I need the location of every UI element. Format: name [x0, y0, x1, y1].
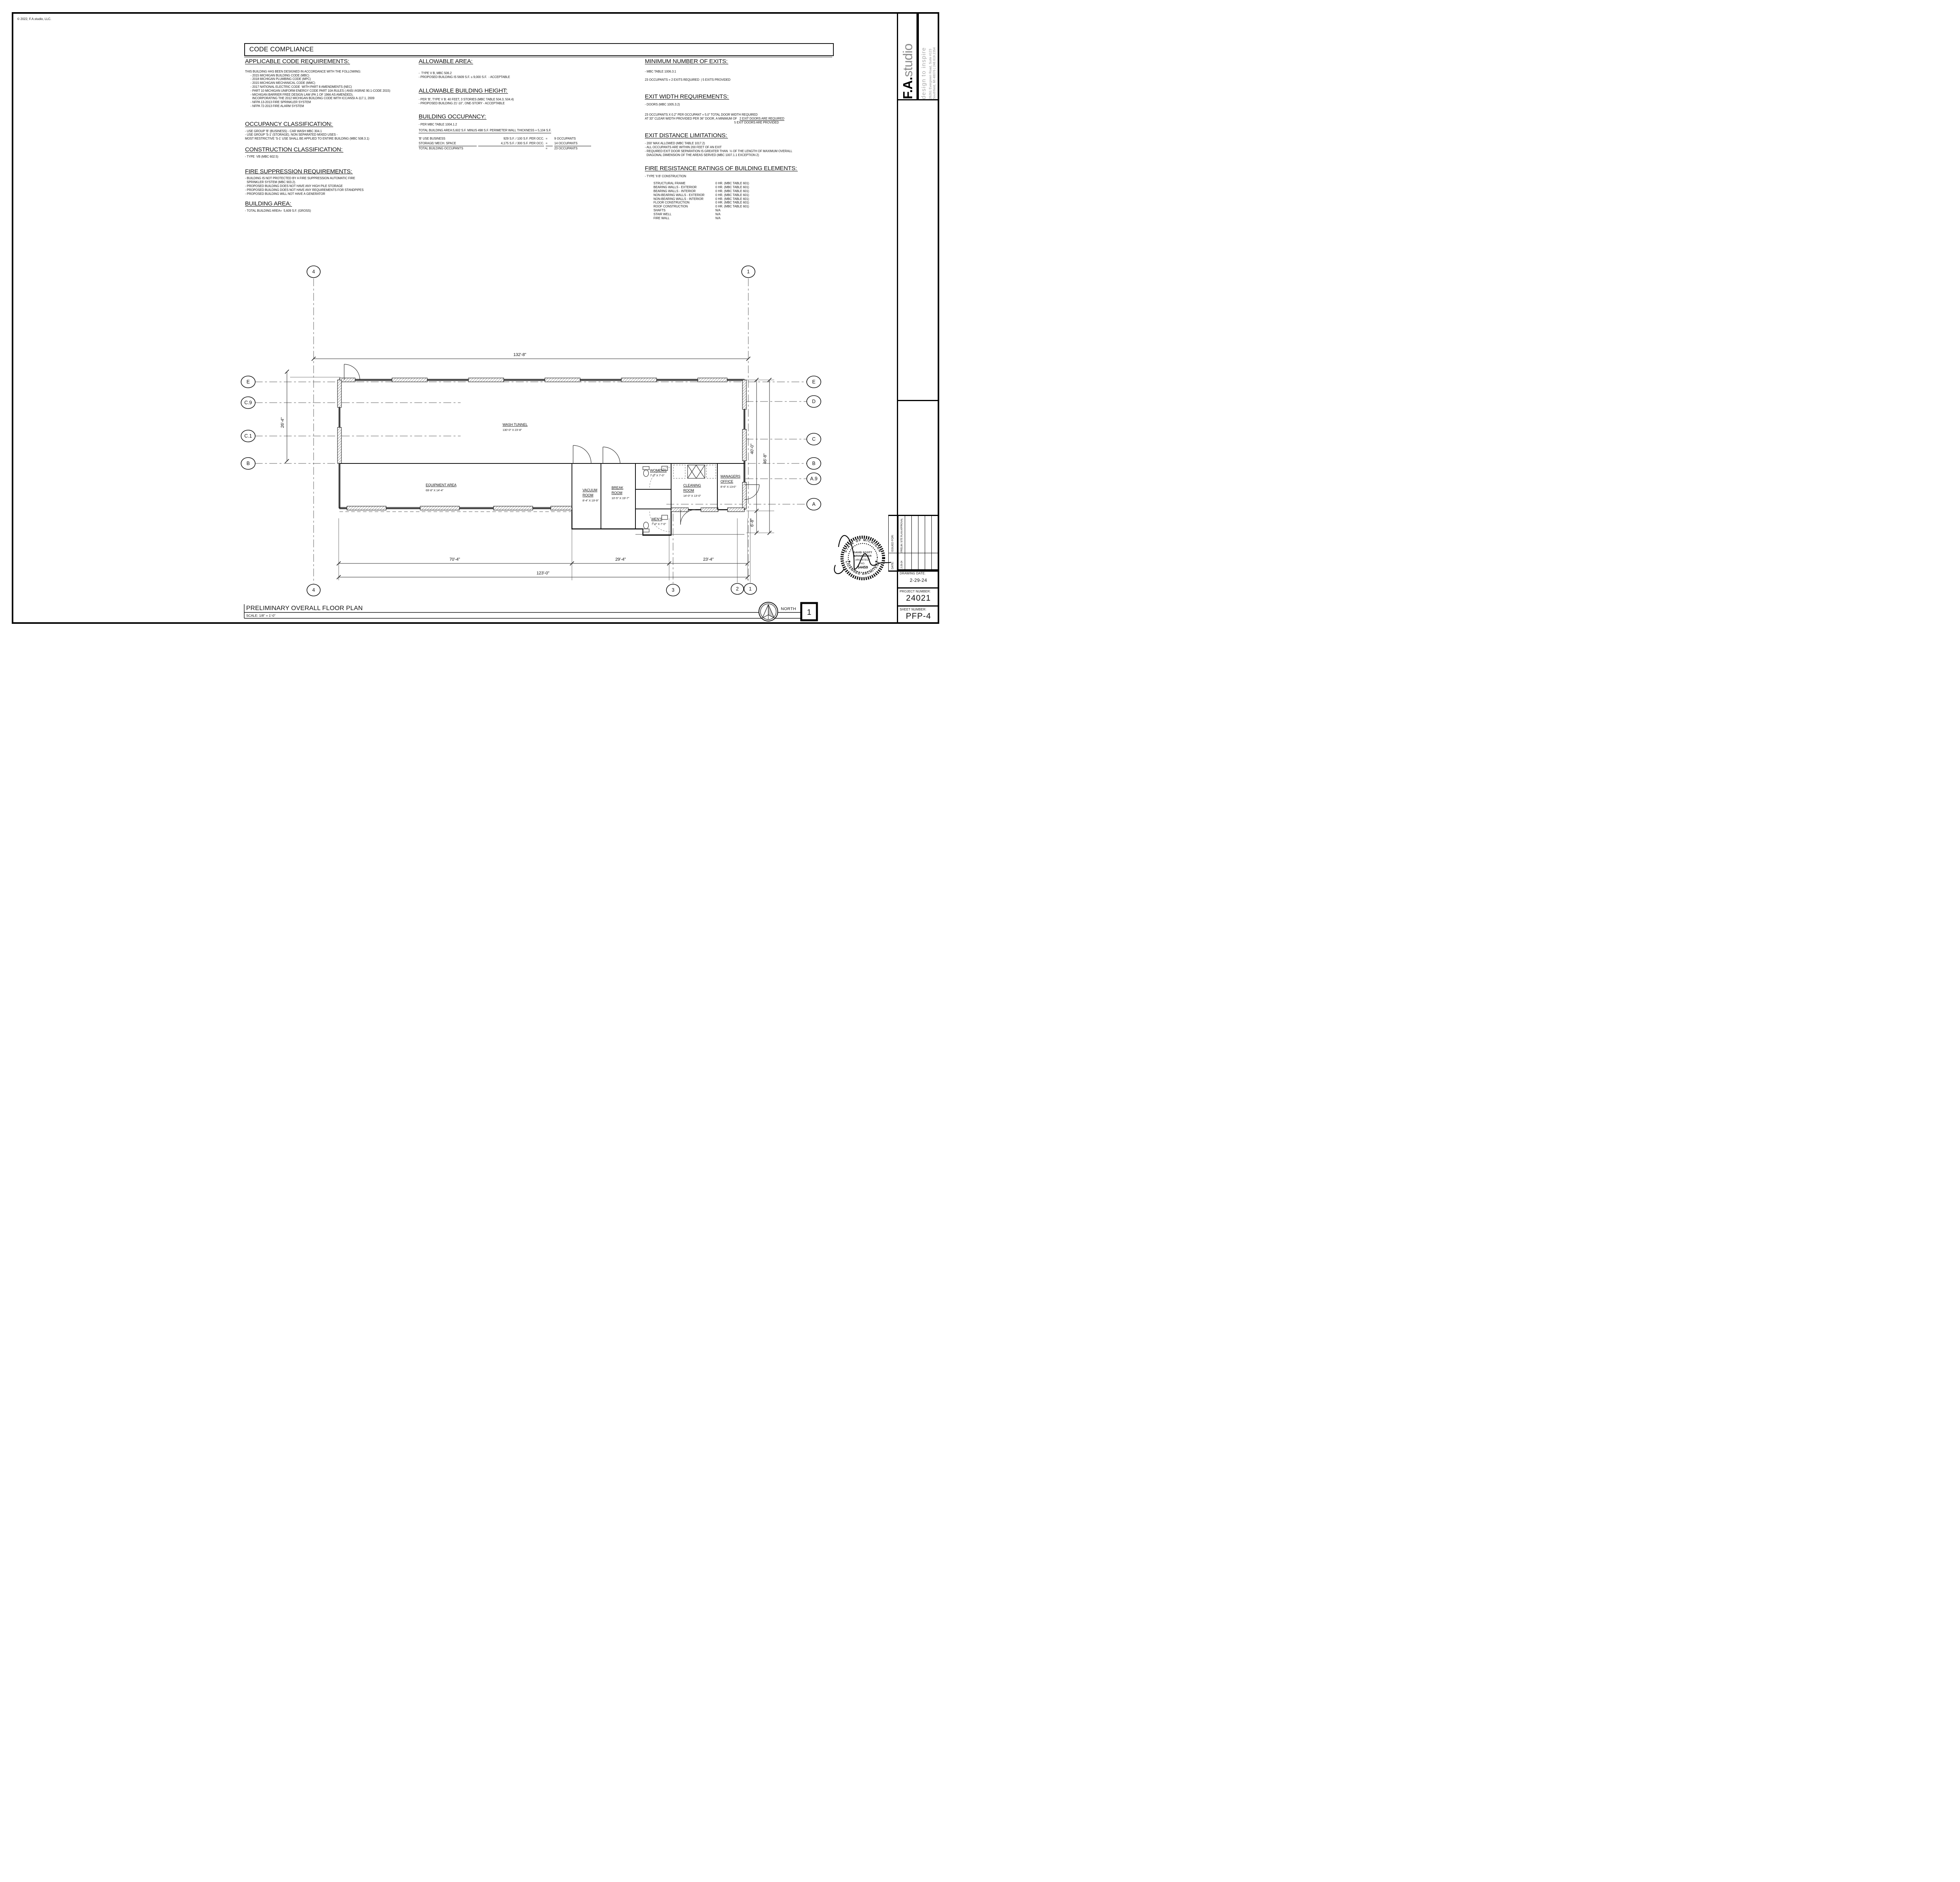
svg-text:1: 1	[749, 586, 752, 592]
dim-canopy: 6'-8"	[750, 518, 755, 527]
svg-text:A: A	[812, 501, 816, 507]
dim-right-b: 46'-8"	[763, 453, 768, 464]
firm-tagline: design to inspire	[920, 12, 927, 99]
svg-text:130'-0" X 23'-8": 130'-0" X 23'-8"	[503, 428, 522, 432]
detail-number: 1	[807, 608, 811, 617]
plan-scale: SCALE: 1/8" = 1'-0"	[246, 614, 276, 618]
firm-address: 26261 Evergreen Road, Suite #123 Southfi…	[929, 12, 936, 99]
project-number-value: 24021	[898, 594, 939, 603]
room-break: BREAK	[612, 486, 623, 490]
dim-seg1: 70'-4"	[450, 557, 460, 562]
north-arrow-icon	[759, 602, 778, 621]
date-label: DATE:	[891, 553, 894, 569]
svg-text:4: 4	[312, 269, 315, 274]
drawing-sheet: © 2022, F.A.studio, LLC. CODE COMPLIANCE…	[0, 0, 941, 627]
dim-seg2: 29'-4"	[615, 557, 626, 562]
svg-text:69'-8" X 14'-4": 69'-8" X 14'-4"	[426, 489, 443, 492]
svg-text:ROOM: ROOM	[612, 491, 622, 495]
svg-text:1: 1	[747, 269, 750, 274]
svg-text:3: 3	[672, 587, 675, 593]
svg-text:OFFICE: OFFICE	[720, 480, 733, 483]
dimension-labels: 132'-8" 70'-4" 29'-4" 23'-4" 123'-0" 26'…	[280, 352, 768, 576]
svg-text:ROOM: ROOM	[683, 489, 694, 492]
revision-date: 2-29-24	[900, 553, 903, 569]
project-name-cell: PROJECT NAME: JAX KAR WASH TROY, MI	[898, 400, 939, 516]
svg-text:10'-5" X 19'-7": 10'-5" X 19'-7"	[612, 496, 629, 500]
svg-text:B: B	[812, 461, 815, 466]
svg-text:E: E	[812, 379, 815, 385]
logo-bar	[916, 14, 919, 99]
room-wash-tunnel: WASH TUNNEL	[503, 423, 528, 427]
firm-logo-cell: F.A.studio design to inspire 26261 Everg…	[898, 12, 939, 100]
dim-top: 132'-8"	[514, 352, 526, 357]
svg-text:★: ★	[875, 560, 878, 563]
dimension-lines	[285, 357, 774, 583]
dim-seg3: 23'-4"	[703, 557, 714, 562]
sheet-number-value: PFP-4	[898, 612, 939, 621]
room-labels: WASH TUNNEL 130'-0" X 23'-8" EQUIPMENT A…	[426, 423, 740, 526]
svg-text:8'-4" X 19'-9": 8'-4" X 19'-9"	[583, 499, 599, 502]
svg-text:C.9: C.9	[244, 400, 252, 405]
plan-title-bar: PRELIMINARY OVERALL FLOOR PLAN SCALE: 1/…	[244, 602, 817, 621]
svg-text:ARCHITECT: ARCHITECT	[855, 559, 870, 561]
dim-right-a: 40'-0"	[750, 443, 755, 454]
plan-title: PRELIMINARY OVERALL FLOOR PLAN	[246, 605, 363, 612]
dim-overall: 123'-0"	[537, 571, 550, 576]
svg-text:2: 2	[736, 586, 739, 592]
svg-text:14'-0" X 13'-0": 14'-0" X 13'-0"	[683, 494, 701, 498]
project-number-label: PROJECT NUMBER:	[900, 590, 931, 593]
dim-left: 26'-4"	[280, 417, 285, 428]
architect-seal: STATE OF MICHIGAN LICENSED ARCHITECT DAV…	[834, 536, 891, 579]
svg-text:★: ★	[848, 560, 851, 563]
revisions-table: ISSUED FOR: DATE: PRELIM. SITE PLAN APPR…	[888, 515, 939, 572]
svg-text:B: B	[247, 461, 250, 466]
svg-text:ROOM: ROOM	[583, 493, 593, 497]
svg-text:C: C	[812, 436, 815, 442]
room-managers: MANAGERS	[720, 474, 740, 478]
svg-text:C.1: C.1	[244, 433, 252, 439]
walls	[338, 378, 746, 535]
drawing-date-label: DRAWING DATE:	[900, 572, 926, 575]
project-number-cell: PROJECT NUMBER: 24021	[898, 587, 939, 607]
svg-text:54459: 54459	[858, 565, 868, 570]
room-womens: WOMEN'S	[650, 469, 667, 472]
room-mens: MEN'S	[652, 517, 662, 521]
svg-text:A.9: A.9	[810, 476, 818, 481]
svg-text:NO.: NO.	[860, 562, 865, 565]
svg-text:8'-6" X 13-0": 8'-6" X 13-0"	[720, 485, 736, 489]
title-block: F.A.studio design to inspire 26261 Everg…	[897, 12, 939, 622]
grid-bubbles: 4 1 4 3 2 1 E C.9 C.1 B E D C B A.9 A	[241, 266, 821, 596]
firm-logo: F.A.studio	[900, 12, 915, 99]
revision-issued-for: PRELIM. SITE PLAN APPROVAL	[900, 516, 903, 552]
room-equipment-area: EQUIPMENT AREA	[426, 483, 457, 487]
sheet-number-label: SHEET NUMBER:	[900, 608, 926, 611]
floor-plan-svg: 132'-8" 70'-4" 29'-4" 23'-4" 123'-0" 26'…	[0, 0, 941, 627]
issued-for-label: ISSUED FOR:	[891, 517, 894, 552]
drawing-date-value: 2-29-24	[898, 578, 939, 583]
svg-text:E: E	[247, 379, 250, 385]
svg-text:D: D	[812, 399, 815, 404]
svg-text:7'-0" X 7'-0": 7'-0" X 7'-0"	[650, 474, 664, 477]
svg-text:DAVID SCOTT: DAVID SCOTT	[853, 551, 872, 554]
sheet-number-cell: SHEET NUMBER: PFP-4	[898, 605, 939, 623]
drawing-date-cell: DRAWING DATE: 2-29-24	[898, 569, 939, 589]
svg-text:7'-0" X 7'-0": 7'-0" X 7'-0"	[652, 522, 666, 526]
svg-text:4: 4	[312, 587, 315, 593]
north-label: NORTH	[781, 607, 796, 611]
room-cleaning: CLEANING	[683, 483, 701, 487]
room-vacuum: VACUUM	[583, 488, 597, 492]
